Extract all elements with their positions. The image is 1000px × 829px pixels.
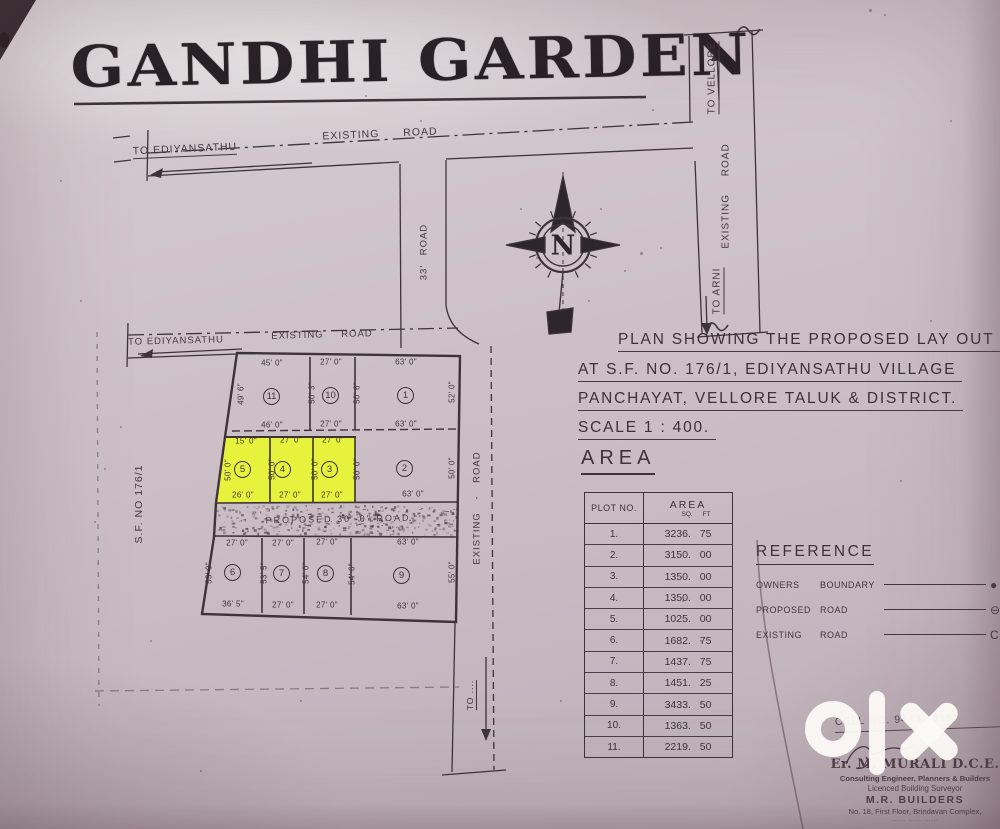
plot-no-cell: 2. <box>585 545 644 565</box>
paper-speck <box>150 640 152 642</box>
paper-speck <box>855 545 857 547</box>
dimension-label: 50' 0" <box>268 458 277 480</box>
paper-speck <box>612 245 614 247</box>
photo-edge-shadow-bottom <box>0 803 1000 829</box>
dimension-label: 27' 0" <box>272 601 294 610</box>
plot-3-number: 3 <box>321 461 338 478</box>
plot-8-number: 8 <box>317 565 334 582</box>
dimension-label: 26' 0" <box>232 491 254 500</box>
olx-x-icon <box>892 700 966 762</box>
area-value-cell: 1025. 00 <box>644 613 732 625</box>
area-value-cell: 3433. 50 <box>644 699 732 711</box>
olx-o-icon <box>805 701 861 757</box>
paper-speck <box>200 770 202 772</box>
east-road-name: EXISTING - ROAD <box>472 451 483 564</box>
dimension-label: 50' 0" <box>448 457 457 479</box>
area-heading: AREA <box>581 447 655 475</box>
paper-speck <box>884 14 886 16</box>
area-table: PLOT NO. AREA SQ. FT 1.3236. 752.3150. 0… <box>584 492 733 758</box>
dimension-label: 27' 0" <box>322 436 344 445</box>
dimension-label: 53' 0" <box>205 562 214 584</box>
dimension-label: 50' 0" <box>224 459 233 481</box>
dimension-label: 50' 0" <box>311 458 320 480</box>
highway-name: EXISTING ROAD <box>721 143 732 248</box>
olx-watermark-icon <box>800 688 972 780</box>
east-road-destination: TO .... <box>465 680 477 710</box>
paper-speck <box>300 700 302 702</box>
plan-note-line-4: SCALE 1 : 400. <box>578 419 716 440</box>
paper-speck <box>601 63 603 65</box>
highway-to-vellore: TO VELLORE <box>707 42 720 115</box>
paper-speck <box>682 600 684 602</box>
plot-no-cell: 10. <box>585 716 644 736</box>
area-col-area: AREA SQ. FT <box>644 493 732 523</box>
plot-4-number: 4 <box>274 461 291 478</box>
area-value-cell: 1350. 00 <box>644 571 732 583</box>
dimension-label: 55' 0" <box>448 561 457 583</box>
area-value-cell: 1437. 75 <box>644 656 732 668</box>
connector-road-lines <box>400 160 479 348</box>
plot-no-cell: 7. <box>585 652 644 672</box>
compass-north-letter: N <box>551 231 576 262</box>
area-table-row: 11.2219. 50 <box>585 736 732 757</box>
area-value-cell: 3150. 00 <box>644 549 732 561</box>
area-col-area-sub: SQ. FT <box>682 511 711 518</box>
highway-to-arni: TO ARNI <box>712 268 725 315</box>
reference-label: EXISTING <box>756 630 820 640</box>
dimension-label: 27' 0" <box>321 491 343 500</box>
paper-speck <box>60 180 62 182</box>
area-table-row: 7.1437. 75 <box>585 651 732 672</box>
dimension-label: 46' 0" <box>261 421 283 430</box>
paper-speck <box>700 640 702 642</box>
area-col-area-label: AREA <box>670 499 707 511</box>
plot-no-cell: 3. <box>585 567 644 587</box>
plot-6-number: 6 <box>224 564 241 581</box>
reference-kind: ROAD <box>820 630 882 640</box>
reference-label: PROPOSED <box>756 605 820 615</box>
dimension-label: 27' 0" <box>320 358 342 367</box>
paper-speck <box>560 700 562 702</box>
dimension-label: 53' 5" <box>260 562 269 584</box>
plot-no-cell: 4. <box>585 588 644 608</box>
reference-kind: ROAD <box>820 605 882 615</box>
area-table-row: 10.1363. 50 <box>585 715 732 736</box>
area-table-row: 8.1451. 25 <box>585 672 732 693</box>
paper-speck <box>624 270 626 272</box>
plot-5-number: 5 <box>234 461 251 478</box>
area-value-cell: 3236. 75 <box>644 528 732 540</box>
plan-note-line-3: PANCHAYAT, VELLORE TALUK & DISTRICT. <box>578 390 963 411</box>
dimension-label: 27' 0" <box>279 491 301 500</box>
paper-speck <box>420 120 422 122</box>
dimension-label: 54' 0" <box>302 562 311 584</box>
plot-no-cell: 8. <box>585 673 644 693</box>
dimension-label: 63' 0" <box>397 602 419 611</box>
area-value-cell: 1363. 50 <box>644 720 732 732</box>
dimension-label: 27' 0" <box>320 420 342 429</box>
olx-l-icon <box>869 691 885 775</box>
page-title: GANDHI GARDEN <box>70 21 752 101</box>
paper-speck <box>930 320 932 322</box>
paper-speck <box>80 300 82 302</box>
area-value-cell: 1350. 00 <box>644 592 732 604</box>
dimension-label: 54' 6" <box>348 563 357 585</box>
paper-speck <box>869 9 872 12</box>
paper-speck <box>365 95 367 97</box>
paper-speck <box>600 208 602 210</box>
area-table-row: 1.3236. 75 <box>585 524 732 544</box>
dimension-label: 63' 0" <box>402 490 424 499</box>
paper-speck <box>640 252 643 255</box>
plot-1-number: 1 <box>397 387 414 404</box>
dimension-label: 36' 5" <box>222 600 244 609</box>
paper-speck <box>520 208 522 210</box>
reference-label: OWNERS <box>756 580 820 590</box>
area-table-row: 5.1025. 00 <box>585 608 732 629</box>
dimension-label: 50' 6" <box>353 382 362 404</box>
dimension-label: 50' 3" <box>308 382 317 404</box>
area-table-row: 3.1350. 00 <box>585 566 732 587</box>
dimension-label: 63' 0" <box>395 420 417 429</box>
area-value-cell: 2219. 50 <box>644 741 732 753</box>
paper-speck <box>640 96 643 99</box>
paper-speck <box>104 468 106 470</box>
plot-no-cell: 1. <box>585 524 644 544</box>
plot-10-number: 10 <box>322 387 339 404</box>
dimension-label: 27' 0" <box>316 601 338 610</box>
plan-note-line-1: PLAN SHOWING THE PROPOSED LAY OUT <box>618 331 1000 352</box>
paper-speck <box>900 480 902 482</box>
plot-2-number: 2 <box>396 460 413 477</box>
paper-speck <box>120 426 122 428</box>
area-table-body: 1.3236. 752.3150. 003.1350. 004.1350. 00… <box>585 524 732 757</box>
area-value-cell: 1451. 25 <box>644 677 732 689</box>
dimension-label: 49' 6" <box>237 383 246 405</box>
dimension-label: 27' 0" <box>226 539 248 548</box>
dimension-label: 27' 0" <box>280 436 302 445</box>
dimension-label: 63' 0" <box>395 358 417 367</box>
plot-no-cell: 5. <box>585 609 644 629</box>
plan-note-line-2: AT S.F. NO. 176/1, EDIYANSATHU VILLAGE <box>578 361 962 382</box>
plot-no-cell: 6. <box>585 630 644 650</box>
paper-speck <box>950 120 952 122</box>
dimension-label: 27' 0" <box>272 539 294 548</box>
dimension-label: 63' 0" <box>397 538 419 547</box>
paper-speck <box>536 257 538 259</box>
dimension-label: 15' 0" <box>235 437 257 446</box>
area-col-plot: PLOT NO. <box>585 493 644 523</box>
area-table-row: 2.3150. 00 <box>585 544 732 565</box>
plot-no-cell: 9. <box>585 694 644 714</box>
plot-9-number: 9 <box>393 567 410 584</box>
survey-number-label: S.F. NO 176/1 <box>133 465 145 544</box>
area-table-header: PLOT NO. AREA SQ. FT <box>585 493 732 524</box>
paper-speck <box>652 109 654 111</box>
dimension-label: 27' 0" <box>316 538 338 547</box>
plot-no-cell: 11. <box>585 737 644 757</box>
reference-kind: BOUNDARY <box>820 580 882 590</box>
plot-11-number: 11 <box>263 388 280 405</box>
layout-plan-sheet: GANDHI GARDEN TO EDIYANSATHU EXISTING RO… <box>0 0 1000 829</box>
paper-speck <box>588 300 590 302</box>
area-value-cell: 1682. 75 <box>644 635 732 647</box>
area-table-row: 6.1682. 75 <box>585 629 732 650</box>
dimension-label: 50' 0" <box>353 458 362 480</box>
dimension-label: 45' 0" <box>261 359 283 368</box>
paper-speck <box>660 247 662 249</box>
area-table-row: 4.1350. 00 <box>585 587 732 608</box>
area-table-row: 9.3433. 50 <box>585 693 732 714</box>
connector-road-label: 33' ROAD <box>419 224 430 280</box>
plot-7-number: 7 <box>273 565 290 582</box>
paper-speck <box>94 521 96 523</box>
dimension-label: 52' 0" <box>448 381 457 403</box>
